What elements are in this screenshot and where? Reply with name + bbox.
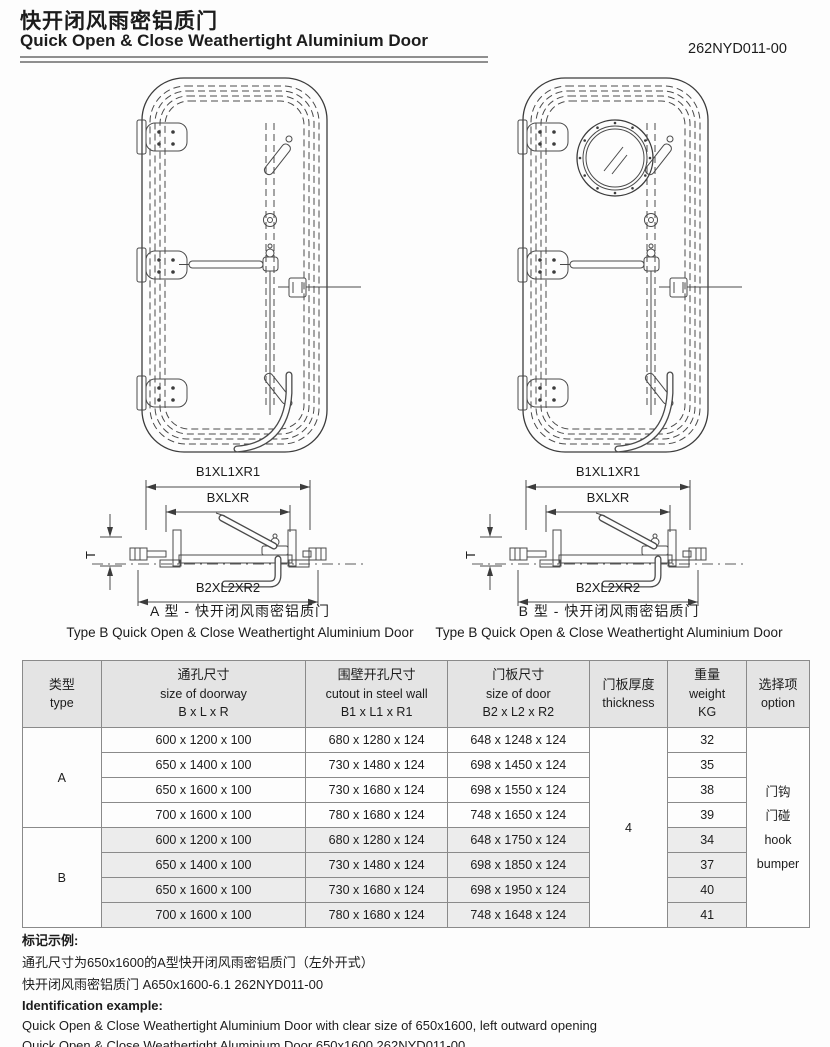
section-b-drawing: B1XL1XR1 BXLXR [458, 462, 758, 607]
col-header-doorway: 通孔尺寸 size of doorway B x L x R [101, 661, 306, 728]
col-header-door: 门板尺寸 size of door B2 x L2 x R2 [447, 661, 589, 728]
cutout-cell: 680 x 1280 x 124 [306, 728, 448, 753]
table-row: 650 x 1400 x 100 730 x 1480 x 124 698 x … [23, 853, 810, 878]
cutout-cell: 730 x 1480 x 124 [306, 853, 448, 878]
caption-type-b: B 型 - 快开闭风雨密铝质门 Type B Quick Open & Clos… [424, 601, 794, 640]
cutout-cell: 780 x 1680 x 124 [306, 803, 448, 828]
table-row: 650 x 1400 x 100 730 x 1480 x 124 698 x … [23, 753, 810, 778]
table-row: 700 x 1600 x 100 780 x 1680 x 124 748 x … [23, 803, 810, 828]
dim-label-door: B2XL2XR2 [196, 580, 260, 595]
dim-label-door: B2XL2XR2 [576, 580, 640, 595]
footer-zh-label: 标记示例: [22, 930, 597, 952]
caption-type-a: A 型 - 快开闭风雨密铝质门 Type B Quick Open & Clos… [55, 601, 425, 640]
door-size-cell: 648 x 1750 x 124 [447, 828, 589, 853]
door-size-cell: 698 x 1850 x 124 [447, 853, 589, 878]
cutout-cell: 780 x 1680 x 124 [306, 903, 448, 928]
section-geometry [472, 513, 744, 584]
col-header-option: 选择项 option [747, 661, 810, 728]
weight-cell: 34 [668, 828, 747, 853]
option-cell: 门钩 门碰 hook bumper [747, 728, 810, 928]
door-size-cell: 748 x 1650 x 124 [447, 803, 589, 828]
section-a-drawing: B1XL1XR1 BXLXR [78, 462, 378, 607]
cutout-cell: 680 x 1280 x 124 [306, 828, 448, 853]
page-title-en: Quick Open & Close Weathertight Aluminiu… [20, 31, 428, 51]
doorway-cell: 700 x 1600 x 100 [101, 803, 306, 828]
dim-label-cutout: B1XL1XR1 [196, 464, 260, 479]
weight-cell: 40 [668, 878, 747, 903]
caption-type-a-en: Type B Quick Open & Close Weathertight A… [55, 625, 425, 640]
col-header-thickness: 门板厚度 thickness [589, 661, 668, 728]
door-size-cell: 698 x 1450 x 124 [447, 753, 589, 778]
footer-en-line2: Quick Open & Close Weathertight Aluminiu… [22, 1036, 597, 1047]
title-divider [20, 56, 488, 63]
type-b-cell: B [23, 828, 102, 928]
col-header-type: 类型 type [23, 661, 102, 728]
door-size-cell: 698 x 1950 x 124 [447, 878, 589, 903]
hinge-icon [518, 120, 568, 154]
doorway-cell: 650 x 1400 x 100 [101, 753, 306, 778]
weight-cell: 37 [668, 853, 747, 878]
doorway-cell: 650 x 1600 x 100 [101, 878, 306, 903]
table-row: 650 x 1600 x 100 730 x 1680 x 124 698 x … [23, 778, 810, 803]
table-row: B 600 x 1200 x 100 680 x 1280 x 124 648 … [23, 828, 810, 853]
weight-cell: 38 [668, 778, 747, 803]
caption-type-b-zh: B 型 - 快开闭风雨密铝质门 [424, 601, 794, 621]
cutout-cell: 730 x 1480 x 124 [306, 753, 448, 778]
datasheet-page: 快开闭风雨密铝质门 Quick Open & Close Weathertigh… [0, 0, 830, 1047]
hinge-icon [137, 120, 187, 154]
footer-en-line1: Quick Open & Close Weathertight Aluminiu… [22, 1016, 597, 1036]
thickness-cell: 4 [589, 728, 668, 928]
dim-line-thickness: T [463, 514, 502, 590]
cutout-cell: 730 x 1680 x 124 [306, 878, 448, 903]
weight-cell: 32 [668, 728, 747, 753]
doorway-cell: 650 x 1400 x 100 [101, 853, 306, 878]
footer-zh-line1: 通孔尺寸为650x1600的A型快开闭风雨密铝质门（左外开式） [22, 952, 597, 974]
dim-label-doorway: BXLXR [207, 490, 250, 505]
section-geometry [92, 513, 364, 584]
doorway-cell: 600 x 1200 x 100 [101, 828, 306, 853]
spec-table: 类型 type 通孔尺寸 size of doorway B x L x R 围… [22, 660, 810, 928]
table-header-row: 类型 type 通孔尺寸 size of doorway B x L x R 围… [23, 661, 810, 728]
col-header-cutout: 围壁开孔尺寸 cutout in steel wall B1 x L1 x R1 [306, 661, 448, 728]
col-header-weight: 重量 weight KG [668, 661, 747, 728]
table-row: A 600 x 1200 x 100 680 x 1280 x 124 648 … [23, 728, 810, 753]
doorway-cell: 700 x 1600 x 100 [101, 903, 306, 928]
doorway-cell: 600 x 1200 x 100 [101, 728, 306, 753]
weight-cell: 41 [668, 903, 747, 928]
hinge-icon [518, 376, 568, 410]
dim-line-thickness: T [83, 514, 122, 590]
dim-label-doorway: BXLXR [587, 490, 630, 505]
weight-cell: 35 [668, 753, 747, 778]
footer-en-label: Identification example: [22, 996, 597, 1016]
door-size-cell: 648 x 1248 x 124 [447, 728, 589, 753]
footer-zh-line2: 快开闭风雨密铝质门 A650x1600-6.1 262NYD011-00 [22, 974, 597, 996]
weight-cell: 39 [668, 803, 747, 828]
table-row: 650 x 1600 x 100 730 x 1680 x 124 698 x … [23, 878, 810, 903]
door-a-drawing [139, 75, 369, 455]
type-a-cell: A [23, 728, 102, 828]
dim-label-thickness: T [83, 551, 98, 559]
identification-example: 标记示例: 通孔尺寸为650x1600的A型快开闭风雨密铝质门（左外开式） 快开… [22, 930, 597, 1047]
dim-label-cutout: B1XL1XR1 [576, 464, 640, 479]
door-b-drawing [520, 75, 750, 455]
porthole-icon [577, 120, 653, 196]
caption-type-b-en: Type B Quick Open & Close Weathertight A… [424, 625, 794, 640]
door-a-frame [142, 78, 327, 452]
dim-label-thickness: T [463, 551, 478, 559]
hinge-icon [137, 376, 187, 410]
doorway-cell: 650 x 1600 x 100 [101, 778, 306, 803]
door-size-cell: 698 x 1550 x 124 [447, 778, 589, 803]
cutout-cell: 730 x 1680 x 124 [306, 778, 448, 803]
document-number: 262NYD011-00 [688, 41, 813, 57]
caption-type-a-zh: A 型 - 快开闭风雨密铝质门 [55, 601, 425, 621]
table-row: 700 x 1600 x 100 780 x 1680 x 124 748 x … [23, 903, 810, 928]
door-size-cell: 748 x 1648 x 124 [447, 903, 589, 928]
door-b-frame [523, 78, 708, 452]
